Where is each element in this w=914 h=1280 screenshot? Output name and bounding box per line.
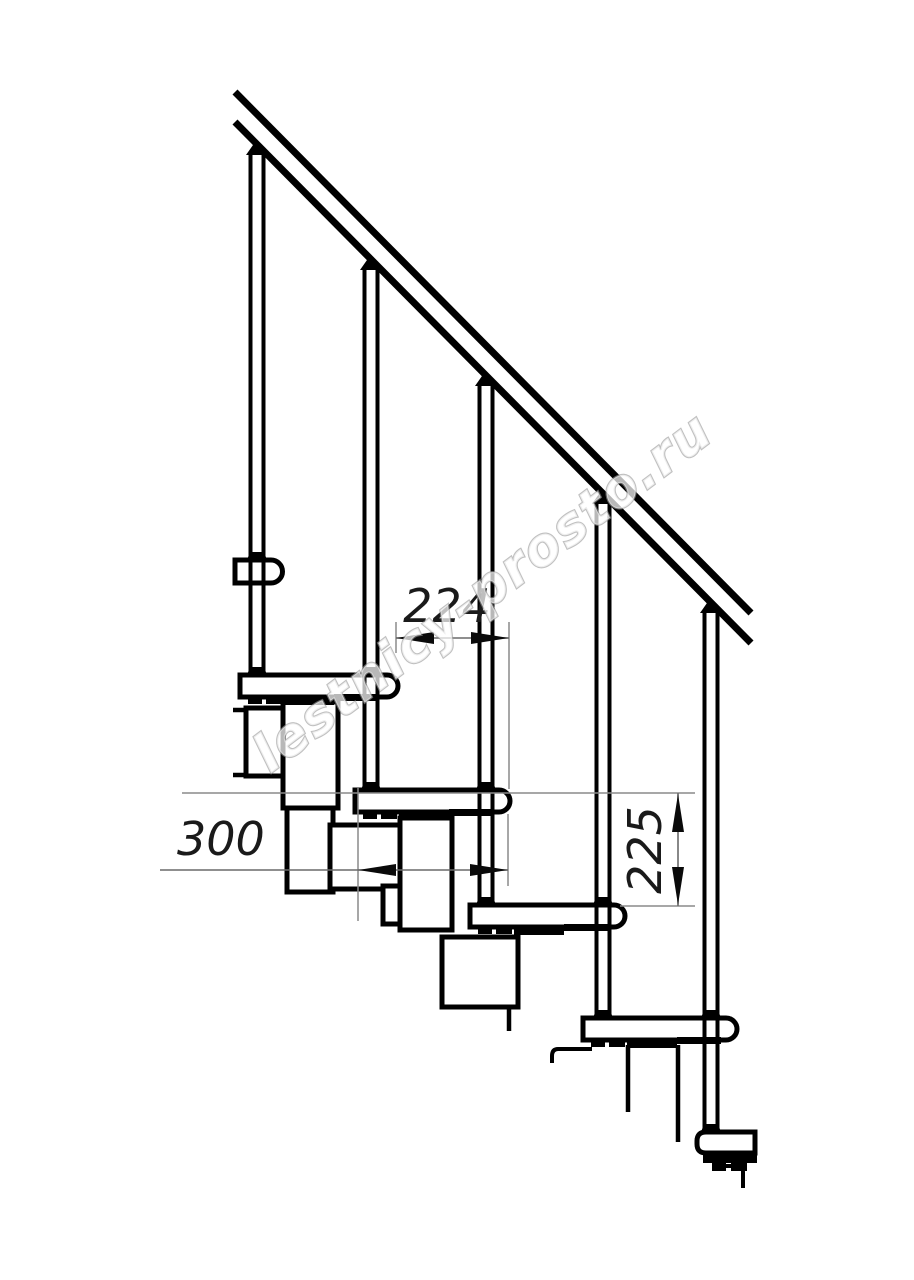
module-box [330, 825, 406, 889]
module-chain [233, 702, 743, 1188]
tread-3-support-plate [514, 925, 564, 935]
dimension-arrow-up [672, 794, 684, 832]
tread-5-bolt [731, 1163, 747, 1171]
tread-2-support-plate [399, 810, 449, 820]
baluster-collar [361, 782, 381, 790]
tread-3-bolt [496, 925, 512, 934]
tread-4 [583, 1018, 737, 1040]
tread-5-bolt [712, 1163, 726, 1171]
baluster-collar [476, 897, 496, 905]
baluster-collar [593, 897, 613, 905]
baluster-5 [700, 603, 722, 1132]
dimension-arrow-right [470, 864, 508, 876]
baluster-collar [593, 1010, 613, 1018]
tread-5 [697, 1132, 755, 1153]
baluster-collar [701, 1124, 721, 1132]
module-box [400, 818, 452, 930]
baluster-collar [247, 667, 267, 675]
tread-2-bolt [381, 810, 397, 819]
watermark-text: lestnicy-prosto.ru [242, 400, 724, 784]
tread-5-support-plate [703, 1151, 757, 1163]
baluster-4 [592, 494, 614, 1018]
tread-2-support-plate [449, 809, 493, 816]
tread-4-support-plate [677, 1037, 721, 1044]
baluster-collar [476, 782, 496, 790]
tread-3 [470, 905, 625, 927]
module-box [442, 937, 518, 1007]
baluster-1 [246, 145, 268, 675]
tread-4-bolt [609, 1038, 625, 1047]
dimension-300-label: 300 [177, 812, 265, 866]
tread-1-bolt [248, 695, 262, 704]
tread-1-bolt [266, 695, 282, 704]
module-hook-line [552, 1049, 592, 1063]
staircase-drawing-page: 224 300 225 lestnicy-prosto.ru [0, 0, 914, 1280]
tread-3-support-plate [564, 924, 608, 931]
tread-3-bolt [478, 925, 492, 934]
module-box [287, 808, 333, 892]
baluster-collar [247, 552, 267, 560]
tread-endview [235, 560, 283, 583]
tread-4-support-plate [627, 1038, 677, 1048]
tread-4-bolt [591, 1038, 605, 1047]
dimension-arrow-down [672, 867, 684, 905]
dimension-225-label: 225 [618, 806, 672, 894]
tread-2-bolt [363, 810, 377, 819]
staircase-side-view-drawing: 224 300 225 lestnicy-prosto.ru [0, 0, 914, 1280]
baluster-collar [701, 1010, 721, 1018]
